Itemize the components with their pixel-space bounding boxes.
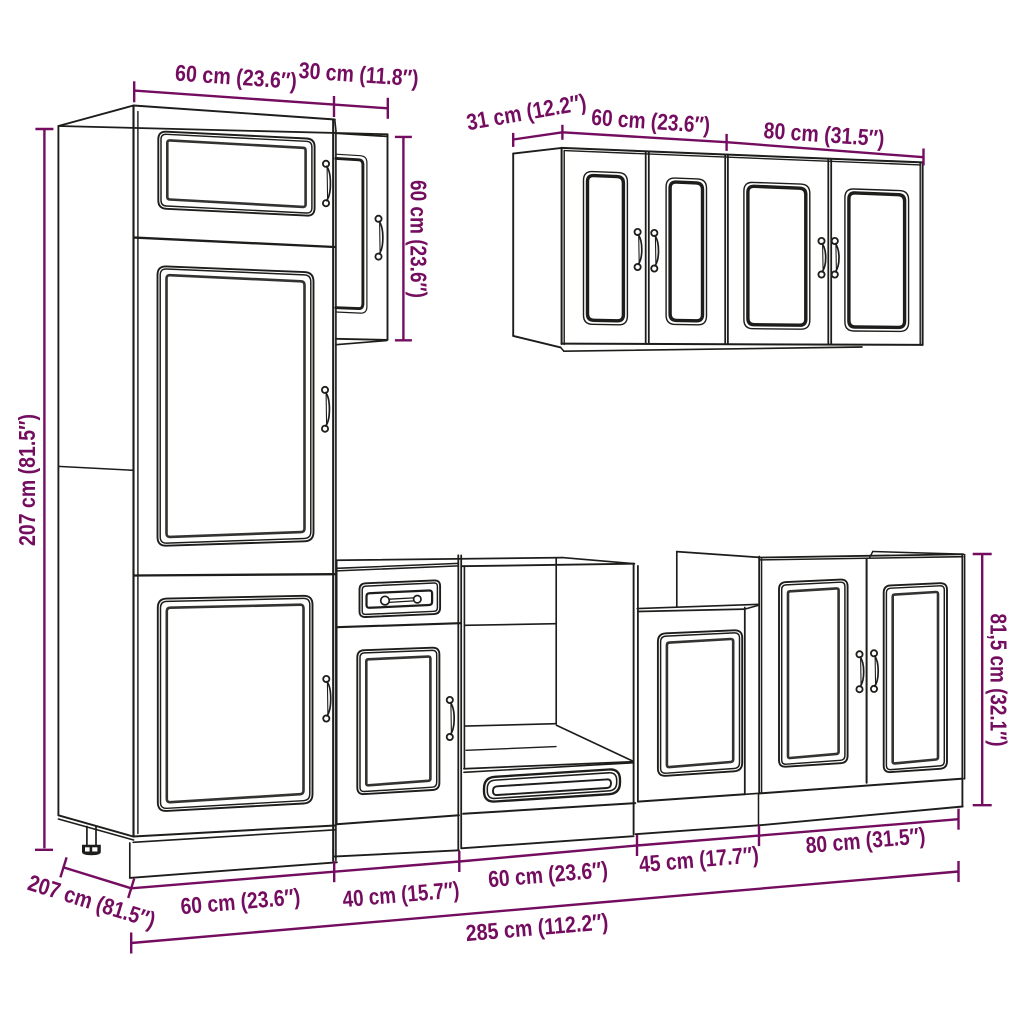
svg-text:60 cm (23.6″): 60 cm (23.6″) <box>406 180 432 298</box>
svg-text:81,5 cm (32.1″): 81,5 cm (32.1″) <box>985 614 1011 747</box>
svg-text:207 cm (81.5″): 207 cm (81.5″) <box>14 414 40 546</box>
